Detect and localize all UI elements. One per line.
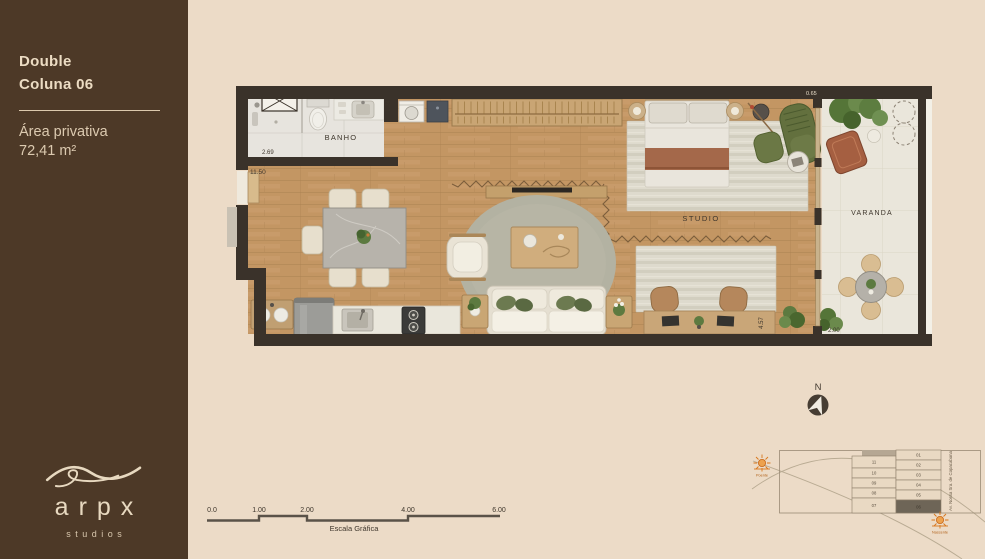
fridge <box>294 298 334 339</box>
scale-tick: 0.0 <box>207 507 217 514</box>
sink <box>342 309 373 331</box>
armchair <box>447 234 488 282</box>
unit-label: 04 <box>916 483 921 488</box>
dining-chair <box>329 266 356 287</box>
desk-plant <box>694 316 704 326</box>
unit-grid <box>852 450 941 513</box>
logo-name: arpx <box>0 493 188 522</box>
dim-banho-depth: 1.24 <box>386 100 392 112</box>
shower-fixture <box>252 112 258 126</box>
floor-plan-canvas: BANHO STUDIO VARANDA 2.69 1.24 11.50 0.6… <box>188 0 985 559</box>
wall-top <box>236 86 932 99</box>
dining-chair <box>302 226 323 254</box>
wall-notch-h <box>236 268 266 280</box>
sofa-side-table <box>606 296 632 328</box>
unit-label: 10 <box>872 471 877 476</box>
wall-notch-v <box>254 280 266 336</box>
wall-bottom <box>254 334 932 346</box>
street-label: Av. Nossa Sra. de Copacabana <box>948 450 953 510</box>
wall-bathroom <box>236 157 398 166</box>
unit-label: 07 <box>872 503 877 508</box>
scale-bar-line <box>207 516 500 521</box>
unit-label: 01 <box>916 453 921 458</box>
sidebar: Double Coluna 06 Área privativa 72,41 m²… <box>0 0 188 559</box>
north-arrow: N <box>808 382 829 416</box>
outdoor-chair <box>862 255 881 274</box>
scale-tick: 6.00 <box>492 507 506 514</box>
unit-label: 02 <box>916 463 921 468</box>
title-divider <box>19 110 160 111</box>
pillow <box>649 103 687 123</box>
door-handle <box>815 158 822 167</box>
bedside-lamp <box>727 103 744 120</box>
hall-recess <box>227 207 237 247</box>
unit-label: 11 <box>872 460 877 465</box>
shower-head <box>254 102 259 107</box>
cooktop <box>402 307 425 334</box>
dim-living-width: 11.50 <box>250 169 266 176</box>
tv <box>512 188 572 193</box>
scale-tick: 4.00 <box>401 507 415 514</box>
sofa <box>487 286 606 335</box>
door-handle <box>815 208 822 225</box>
unit-title: Double Coluna 06 <box>0 0 188 97</box>
wardrobe <box>452 99 622 126</box>
unit-label: 03 <box>916 473 921 478</box>
room-label-banho: BANHO <box>325 133 358 142</box>
dining-chair <box>329 189 356 210</box>
site-plan: 11 10 09 08 07 01 02 03 04 05 06 Av. Nos… <box>752 450 985 559</box>
faucet <box>361 101 365 105</box>
laundry-nook <box>399 101 448 122</box>
dim-banho-width: 2.69 <box>262 150 274 156</box>
arpx-logo: arpx studios <box>0 453 188 539</box>
side-table <box>788 152 809 173</box>
laptop <box>662 316 680 327</box>
unit-label-highlighted: 06 <box>916 505 921 510</box>
wall-stub-top <box>813 99 822 108</box>
room-label-varanda: VARANDA <box>851 210 893 217</box>
wall-right <box>918 86 926 346</box>
dim-desk-depth: 4.57 <box>759 317 765 329</box>
logo-subtext: studios <box>0 529 188 539</box>
floor-plan: BANHO STUDIO VARANDA 2.69 1.24 11.50 0.6… <box>227 86 932 346</box>
dim-studio-gap: 0.65 <box>806 91 817 97</box>
plant-tray <box>868 130 881 143</box>
north-label: N <box>815 382 822 393</box>
dining-chair <box>362 189 389 210</box>
outdoor-chair <box>839 278 858 297</box>
pillow <box>689 103 727 123</box>
sun-east-icon <box>932 512 949 529</box>
tray <box>524 235 537 248</box>
dryer <box>427 101 448 122</box>
sun-west-icon <box>754 455 771 472</box>
varanda-railing <box>926 99 932 334</box>
sun-east-label: Nascente <box>932 531 948 535</box>
area-label: Área privativa <box>19 123 188 143</box>
dining-chair <box>362 266 389 287</box>
shower-drain <box>274 120 277 123</box>
outdoor-chair <box>885 278 904 297</box>
wall-stub-bottom <box>813 326 822 334</box>
area-value: 72,41 m² <box>19 142 188 162</box>
vanity <box>334 99 384 120</box>
bedside-lamp <box>629 103 646 120</box>
unit-title-line2: Coluna 06 <box>19 73 188 96</box>
bed <box>645 97 729 187</box>
unit-label: 08 <box>872 491 877 496</box>
coffee-table <box>511 227 578 268</box>
dining-table <box>323 208 406 268</box>
desk-chair <box>650 286 679 314</box>
unit-label: 05 <box>916 493 921 498</box>
dim-varanda-width: 2.00 <box>828 328 840 334</box>
laptop <box>717 316 735 327</box>
private-area: Área privativa 72,41 m² <box>0 123 188 162</box>
door-threshold <box>237 171 248 204</box>
logo-wave-icon <box>42 453 146 493</box>
sofa-side-table <box>462 295 488 328</box>
bathroom <box>248 91 384 157</box>
outdoor-chair <box>862 301 881 320</box>
unit-label: 09 <box>872 481 877 486</box>
scale-tick: 1.00 <box>252 507 266 514</box>
studio-area <box>627 97 824 211</box>
door-handle <box>815 270 822 279</box>
washer-door <box>405 107 418 120</box>
scale-bar: 0.0 1.00 2.00 4.00 6.00 Escala Gráfica <box>207 507 506 533</box>
door-leaf <box>248 172 259 203</box>
sliding-door <box>815 108 822 326</box>
scale-tick: 2.00 <box>300 507 314 514</box>
scale-caption: Escala Gráfica <box>330 524 380 533</box>
unit-title-line1: Double <box>19 50 188 73</box>
desk-chair <box>719 286 748 313</box>
room-label-studio: STUDIO <box>682 214 719 223</box>
wall-left-lower <box>236 205 248 268</box>
bed-blanket <box>645 148 729 170</box>
sun-west-label: Poente <box>756 474 768 478</box>
